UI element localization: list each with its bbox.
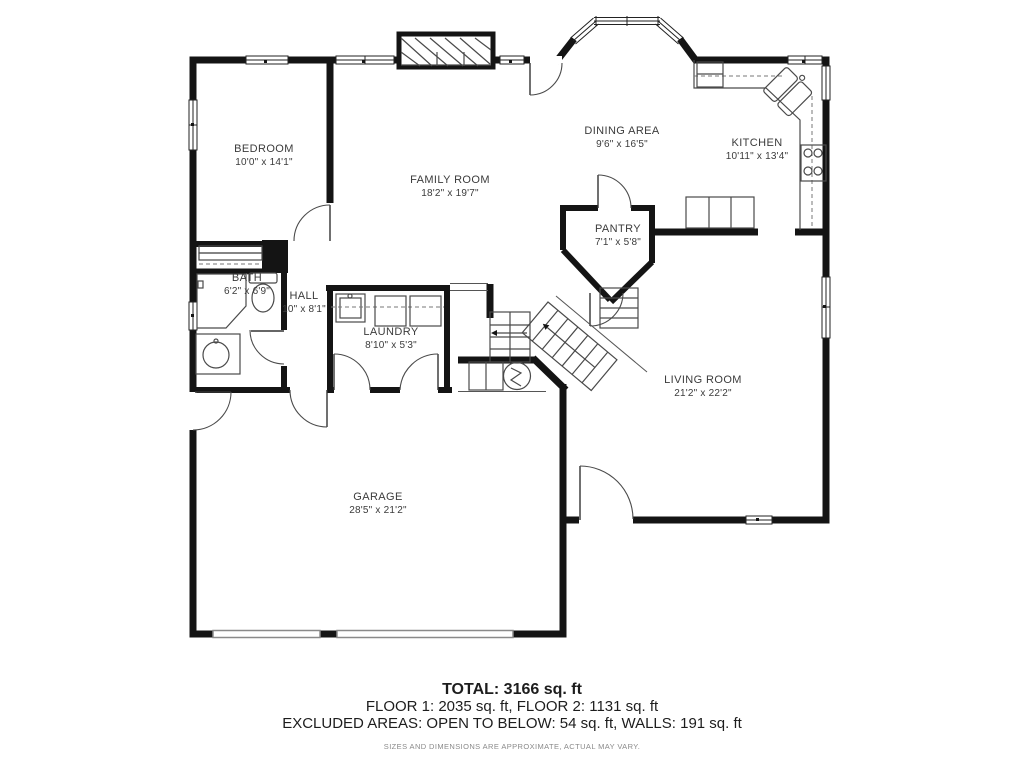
summary-floors: FLOOR 1: 2035 sq. ft, FLOOR 2: 1131 sq. … <box>0 698 1024 715</box>
room-dims: 10'0" x 14'1" <box>234 156 294 169</box>
room-name: LAUNDRY <box>363 326 418 339</box>
room-dims: 6'2" x 6'9" <box>224 285 270 298</box>
bath-sink-icon <box>196 334 240 374</box>
room-label-bath: BATH 6'2" x 6'9" <box>224 272 270 298</box>
bedroom-door <box>294 205 330 241</box>
kitchen-island <box>686 197 754 228</box>
room-label-laundry: LAUNDRY 8'10" x 5'3" <box>363 326 418 352</box>
room-label-hall: HALL 10" x 8'1" <box>282 290 326 316</box>
floor-plan-drawing <box>0 0 1024 768</box>
room-name: HALL <box>282 290 326 303</box>
room-dims: 8'10" x 5'3" <box>363 339 418 352</box>
room-name: GARAGE <box>349 491 406 504</box>
room-dims: 21'2" x 22'2" <box>664 387 742 400</box>
utility-sink-icon <box>336 294 365 322</box>
fireplace <box>399 34 493 67</box>
shower-head-icon <box>198 281 203 288</box>
room-label-family-room: FAMILY ROOM 18'2" x 19'7" <box>410 174 490 200</box>
laundry-fixtures <box>331 294 444 326</box>
back-door <box>530 56 562 95</box>
room-name: DINING AREA <box>584 125 659 138</box>
room-dims: 10'11" x 13'4" <box>726 150 788 163</box>
dryer-icon <box>410 296 441 326</box>
room-dims: 28'5" x 21'2" <box>349 504 406 517</box>
hall-garage-door <box>290 387 327 428</box>
stove-icon <box>801 145 826 181</box>
room-dims: 18'2" x 19'7" <box>410 187 490 200</box>
floor-plan-page: BEDROOM 10'0" x 14'1" FAMILY ROOM 18'2" … <box>0 0 1024 768</box>
room-label-pantry: PANTRY 7'1" x 5'8" <box>595 223 641 249</box>
room-name: FAMILY ROOM <box>410 174 490 187</box>
garage-doors <box>213 631 513 638</box>
room-dims: 9'6" x 16'5" <box>584 138 659 151</box>
fridge-icon <box>697 62 723 87</box>
laundry-door-left <box>334 354 370 390</box>
furnace-icon <box>504 363 531 390</box>
room-name: BEDROOM <box>234 143 294 156</box>
room-name: PANTRY <box>595 223 641 236</box>
room-name: LIVING ROOM <box>664 374 742 387</box>
pantry-door <box>598 175 631 212</box>
bedroom-closet <box>199 246 262 264</box>
bath-door <box>250 330 284 364</box>
room-label-living-room: LIVING ROOM 21'2" x 22'2" <box>664 374 742 400</box>
garage-door-right <box>337 631 513 638</box>
room-label-dining-area: DINING AREA 9'6" x 16'5" <box>584 125 659 151</box>
washer-icon <box>375 296 406 326</box>
front-door <box>579 466 633 524</box>
furnace-nook <box>458 362 546 392</box>
summary-block: TOTAL: 3166 sq. ft FLOOR 1: 2035 sq. ft,… <box>0 681 1024 751</box>
room-dims: 7'1" x 5'8" <box>595 236 641 249</box>
garage-door-left <box>213 631 320 638</box>
bay-window <box>556 16 697 62</box>
garage-side-door <box>190 392 232 430</box>
room-name: BATH <box>224 272 270 285</box>
kitchen-right-window <box>822 66 830 100</box>
room-dims: 10" x 8'1" <box>282 303 326 316</box>
room-label-bedroom: BEDROOM 10'0" x 14'1" <box>234 143 294 169</box>
summary-excluded: EXCLUDED AREAS: OPEN TO BELOW: 54 sq. ft… <box>0 715 1024 732</box>
corner-sink-icon <box>763 63 817 117</box>
room-label-garage: GARAGE 28'5" x 21'2" <box>349 491 406 517</box>
room-name: KITCHEN <box>726 137 788 150</box>
room-label-kitchen: KITCHEN 10'11" x 13'4" <box>726 137 788 163</box>
laundry-door-right <box>400 354 438 390</box>
summary-total: TOTAL: 3166 sq. ft <box>0 681 1024 698</box>
summary-disclaimer: SIZES AND DIMENSIONS ARE APPROXIMATE, AC… <box>0 742 1024 751</box>
